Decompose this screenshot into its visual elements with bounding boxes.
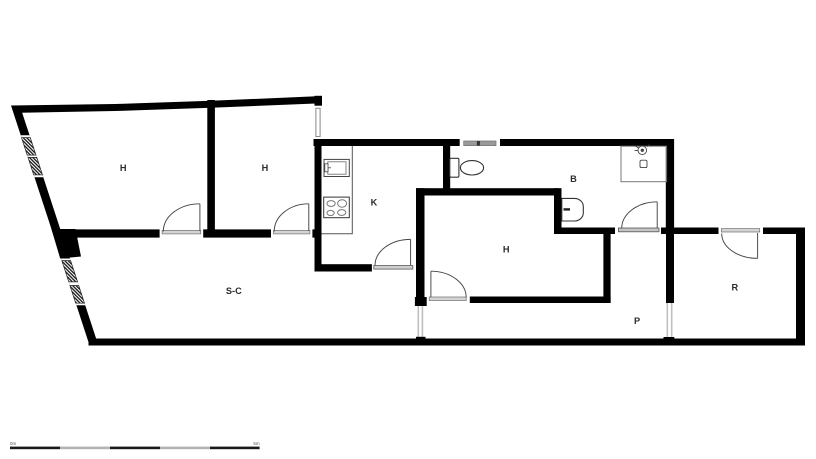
svg-text:H: H [120, 163, 127, 173]
svg-text:H: H [503, 245, 510, 255]
svg-text:B: B [570, 174, 577, 184]
svg-text:K: K [371, 198, 378, 208]
svg-text:R: R [731, 283, 738, 293]
svg-text:H: H [262, 163, 269, 173]
svg-text:S-C: S-C [226, 286, 242, 296]
svg-text:P: P [634, 316, 640, 326]
svg-text:5m: 5m [253, 441, 260, 446]
svg-text:0m: 0m [10, 441, 17, 446]
